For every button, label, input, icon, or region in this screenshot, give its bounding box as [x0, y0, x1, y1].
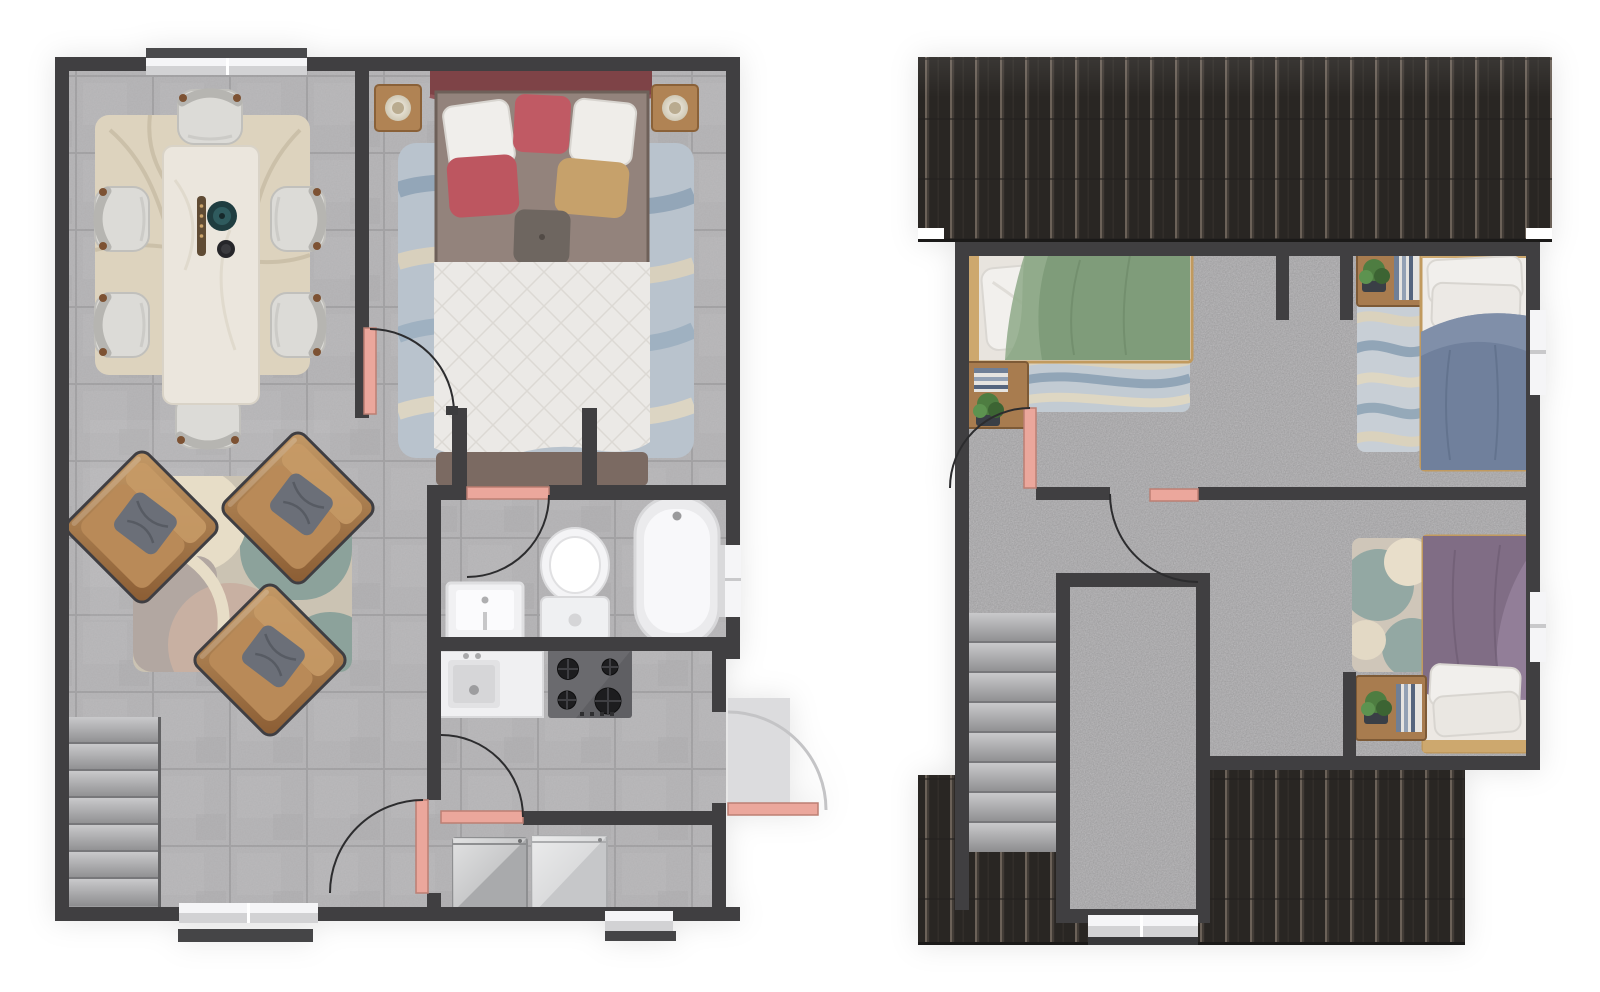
bed-green: [967, 248, 1192, 362]
gas-hob: [548, 649, 632, 718]
dining-chair: [271, 187, 325, 251]
roof-top: [918, 57, 1552, 242]
nightstand-purple-room: [1356, 676, 1426, 740]
staircase-upper: [969, 613, 1056, 852]
nightstand-left: [375, 85, 421, 131]
staircase-ground: [69, 717, 161, 907]
dining-chair: [95, 293, 149, 357]
pillow: [1433, 691, 1522, 737]
bed-blue: [1421, 248, 1529, 470]
pillow: [569, 98, 637, 166]
pillow-tan: [554, 157, 631, 219]
entry: [728, 698, 826, 815]
nightstand-green-room: [966, 362, 1028, 428]
pillow-red: [446, 154, 520, 219]
dining-chair: [178, 90, 242, 144]
upper-floor-plan: [918, 57, 1552, 945]
nightstand-right: [652, 85, 698, 131]
blue-room-rug: [1352, 300, 1428, 452]
ground-floor-plan: [55, 48, 826, 942]
dining-chair: [95, 187, 149, 251]
kitchen: [438, 649, 632, 718]
dining-chair: [271, 293, 325, 357]
nightstand-blue-room: [1357, 248, 1423, 306]
pillow-red: [513, 94, 572, 155]
floor-plan-canvas: [0, 0, 1600, 992]
footboard: [1423, 740, 1529, 752]
bed-foot: [436, 452, 648, 486]
porch: [728, 698, 790, 808]
bed-purple: [1423, 536, 1529, 752]
entry-door-leaf: [728, 803, 818, 815]
